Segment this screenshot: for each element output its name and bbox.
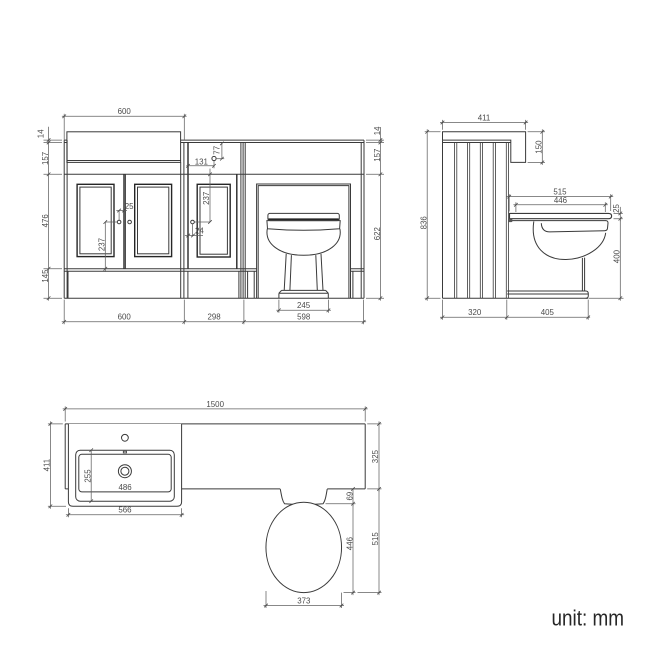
svg-text:14: 14 (36, 129, 45, 138)
svg-text:157: 157 (373, 149, 382, 162)
svg-text:515: 515 (371, 532, 380, 546)
svg-text:14: 14 (373, 126, 382, 135)
svg-text:157: 157 (41, 152, 50, 165)
svg-text:411: 411 (478, 113, 491, 122)
svg-text:131: 131 (195, 157, 208, 166)
svg-text:622: 622 (373, 227, 382, 240)
svg-text:24: 24 (195, 227, 204, 236)
svg-text:unit: mm: unit: mm (552, 606, 624, 631)
svg-text:255: 255 (84, 469, 93, 483)
svg-text:1500: 1500 (206, 400, 224, 409)
svg-text:598: 598 (297, 312, 311, 321)
svg-text:237: 237 (98, 238, 107, 251)
svg-text:600: 600 (118, 312, 132, 321)
svg-text:77: 77 (213, 146, 222, 155)
svg-text:325: 325 (371, 449, 380, 463)
svg-text:25: 25 (612, 204, 621, 213)
svg-text:25: 25 (125, 202, 134, 211)
svg-text:411: 411 (43, 459, 52, 472)
svg-text:446: 446 (346, 536, 355, 550)
svg-text:600: 600 (118, 107, 132, 116)
svg-text:237: 237 (202, 192, 211, 205)
svg-text:298: 298 (208, 312, 222, 321)
svg-text:405: 405 (541, 308, 555, 317)
svg-text:245: 245 (297, 301, 311, 310)
svg-text:566: 566 (118, 506, 132, 515)
svg-text:145: 145 (41, 269, 50, 283)
svg-text:400: 400 (613, 249, 622, 263)
svg-text:320: 320 (468, 308, 482, 317)
svg-text:836: 836 (420, 216, 429, 230)
svg-text:69: 69 (346, 491, 355, 500)
svg-text:446: 446 (554, 196, 568, 205)
svg-text:150: 150 (535, 140, 544, 154)
svg-text:476: 476 (41, 214, 50, 228)
svg-text:373: 373 (297, 596, 311, 605)
svg-text:486: 486 (119, 483, 133, 492)
